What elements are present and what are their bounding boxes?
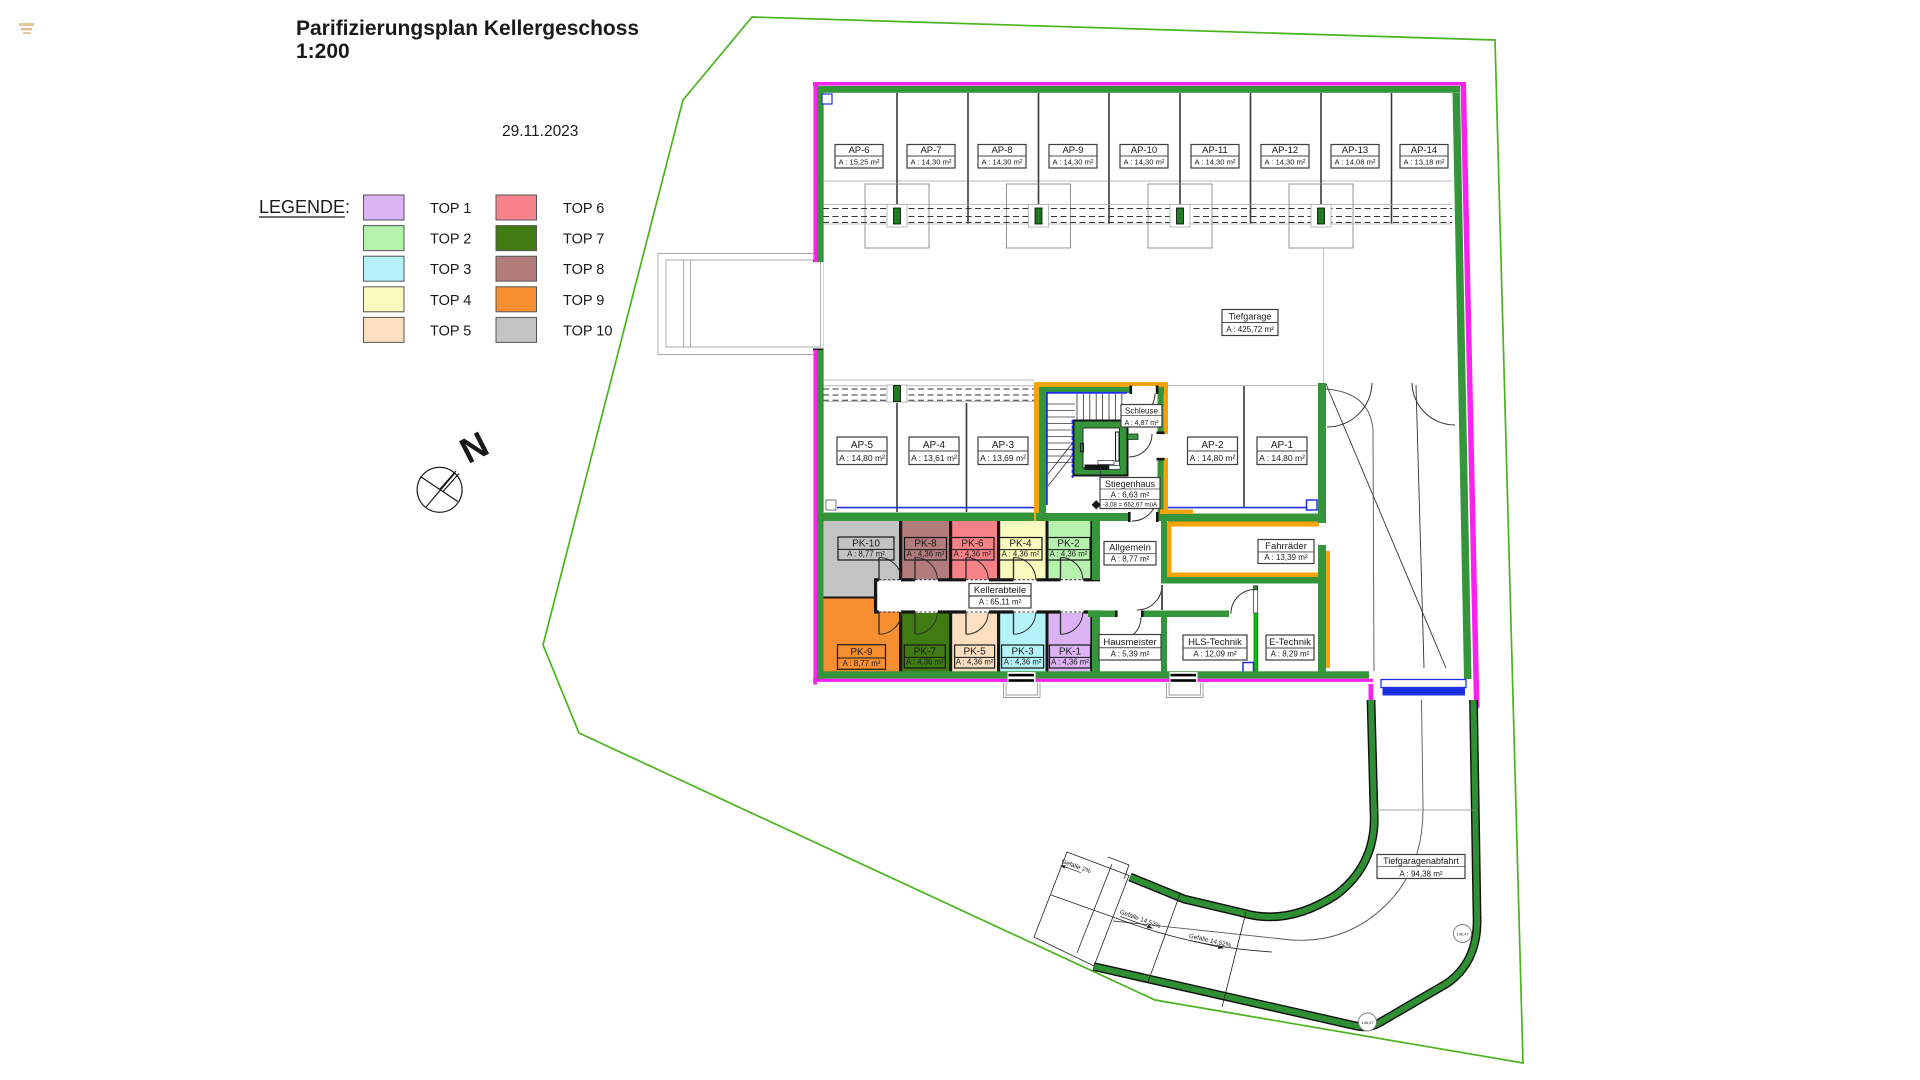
svg-text:PK-10: PK-10: [852, 538, 880, 549]
svg-text:TOP 8: TOP 8: [563, 262, 604, 278]
svg-text:PK-4: PK-4: [1009, 539, 1032, 550]
svg-text:A : 4,36 m²: A : 4,36 m²: [1051, 658, 1089, 667]
svg-text:A : 14,30 m²: A : 14,30 m²: [1124, 158, 1165, 167]
svg-text:A : 4,36 m²: A : 4,36 m²: [954, 550, 992, 559]
svg-text:A : 15,25 m²: A : 15,25 m²: [839, 158, 880, 167]
svg-text:A : 4,36 m²: A : 4,36 m²: [1050, 550, 1088, 559]
svg-text:AP-12: AP-12: [1272, 145, 1298, 156]
svg-text:AP-9: AP-9: [1062, 145, 1083, 156]
svg-text:A : 14,80 m²: A : 14,80 m²: [1190, 453, 1236, 463]
svg-text:AP-10: AP-10: [1131, 145, 1157, 156]
svg-text:TOP 4: TOP 4: [430, 293, 471, 309]
svg-text:A : 4,36 m²: A : 4,36 m²: [907, 550, 945, 559]
svg-text:A : 8,77 m²: A : 8,77 m²: [847, 550, 885, 559]
svg-text:1:200: 1:200: [296, 40, 350, 63]
svg-text:AP-3: AP-3: [992, 440, 1015, 451]
svg-text:Tiefgarage: Tiefgarage: [1229, 312, 1272, 322]
svg-text:Kellerabteile: Kellerabteile: [974, 585, 1026, 596]
svg-text:29.11.2023: 29.11.2023: [502, 123, 578, 140]
svg-text:A : 8,29 m²: A : 8,29 m²: [1271, 650, 1310, 659]
svg-text:A : 6,63 m²: A : 6,63 m²: [1111, 490, 1150, 499]
svg-text:A : 8,77 m²: A : 8,77 m²: [1111, 555, 1150, 564]
svg-text:E-Technik: E-Technik: [1269, 637, 1311, 648]
svg-text:A : 14,80 m²: A : 14,80 m²: [1259, 453, 1305, 463]
svg-text:A : 12,09 m²: A : 12,09 m²: [1193, 650, 1236, 659]
svg-text:AP-6: AP-6: [848, 145, 869, 156]
svg-text:AP-14: AP-14: [1411, 145, 1437, 156]
svg-text:A : 14,08 m²: A : 14,08 m²: [1335, 158, 1376, 167]
svg-text:Parifizierungsplan Kellergesch: Parifizierungsplan Kellergeschoss: [296, 17, 639, 40]
svg-text:AP-2: AP-2: [1201, 440, 1224, 451]
svg-text:TOP 10: TOP 10: [563, 323, 612, 339]
svg-text:A : 14,80 m²: A : 14,80 m²: [839, 453, 885, 463]
svg-text:A : 5,39 m²: A : 5,39 m²: [1111, 650, 1150, 659]
svg-text:A : 8,77 m²: A : 8,77 m²: [843, 659, 881, 668]
svg-text:LEGENDE:: LEGENDE:: [259, 197, 350, 217]
svg-text:A : 425,72 m²: A : 425,72 m²: [1226, 325, 1274, 334]
svg-text:A : 14,30 m²: A : 14,30 m²: [911, 158, 952, 167]
svg-text:A : 13,69 m²: A : 13,69 m²: [980, 453, 1026, 463]
svg-text:TOP 6: TOP 6: [563, 201, 604, 217]
svg-text:146,47: 146,47: [1456, 932, 1469, 937]
svg-text:A : 13,61 m²: A : 13,61 m²: [911, 453, 957, 463]
svg-text:AP-13: AP-13: [1342, 145, 1368, 156]
svg-text:PK-6: PK-6: [961, 539, 984, 550]
svg-text:PK-7: PK-7: [914, 646, 937, 657]
svg-text:Fahrräder: Fahrräder: [1265, 541, 1307, 552]
svg-text:AP-11: AP-11: [1202, 145, 1228, 156]
svg-text:PK-1: PK-1: [1059, 646, 1082, 657]
svg-text:Tiefgaragenabfahrt: Tiefgaragenabfahrt: [1383, 856, 1459, 866]
svg-text:PK-9: PK-9: [850, 647, 873, 658]
svg-text:A : 14,30 m²: A : 14,30 m²: [1053, 158, 1094, 167]
svg-text:AP-8: AP-8: [991, 145, 1012, 156]
svg-text:-3,08 = 662,67 müA: -3,08 = 662,67 müA: [1103, 501, 1158, 508]
svg-text:PK-2: PK-2: [1057, 539, 1080, 550]
svg-text:A : 4,36 m²: A : 4,36 m²: [1002, 550, 1040, 559]
svg-text:TOP 7: TOP 7: [563, 232, 604, 248]
svg-text:Allgemein: Allgemein: [1109, 543, 1151, 554]
svg-text:AP-5: AP-5: [851, 440, 874, 451]
svg-text:A : 4,36 m²: A : 4,36 m²: [1004, 658, 1042, 667]
svg-text:HLS-Technik: HLS-Technik: [1188, 637, 1242, 648]
svg-text:A : 13,18 m²: A : 13,18 m²: [1404, 158, 1445, 167]
svg-text:A : 94,38 m²: A : 94,38 m²: [1399, 869, 1442, 878]
svg-text:A : 14,30 m²: A : 14,30 m²: [1195, 158, 1236, 167]
svg-text:A : 4,87 m²: A : 4,87 m²: [1125, 420, 1160, 427]
svg-text:TOP 1: TOP 1: [430, 201, 471, 217]
svg-text:TOP 3: TOP 3: [430, 262, 471, 278]
svg-text:AP-4: AP-4: [923, 440, 946, 451]
svg-text:Stiegenhaus: Stiegenhaus: [1105, 479, 1156, 489]
svg-text:A : 4,36 m²: A : 4,36 m²: [906, 658, 944, 667]
svg-text:AP-7: AP-7: [920, 145, 941, 156]
svg-text:A : 14,30 m²: A : 14,30 m²: [1265, 158, 1306, 167]
svg-text:A : 4,36 m²: A : 4,36 m²: [956, 658, 994, 667]
svg-text:A : 65,11 m²: A : 65,11 m²: [979, 598, 1022, 607]
svg-text:A : 13,39 m²: A : 13,39 m²: [1264, 553, 1307, 562]
svg-text:PK-3: PK-3: [1011, 646, 1034, 657]
svg-text:PK-5: PK-5: [963, 646, 986, 657]
svg-text:AP-1: AP-1: [1271, 440, 1294, 451]
svg-text:TOP 2: TOP 2: [430, 232, 471, 248]
svg-text:Schleuse: Schleuse: [1125, 406, 1158, 415]
svg-text:PK-8: PK-8: [914, 539, 937, 550]
svg-text:Hausmeister: Hausmeister: [1103, 637, 1156, 648]
svg-text:A : 14,30 m²: A : 14,30 m²: [982, 158, 1023, 167]
svg-text:TOP 5: TOP 5: [430, 323, 471, 339]
svg-text:146,27: 146,27: [1361, 1020, 1374, 1025]
svg-text:TOP 9: TOP 9: [563, 293, 604, 309]
